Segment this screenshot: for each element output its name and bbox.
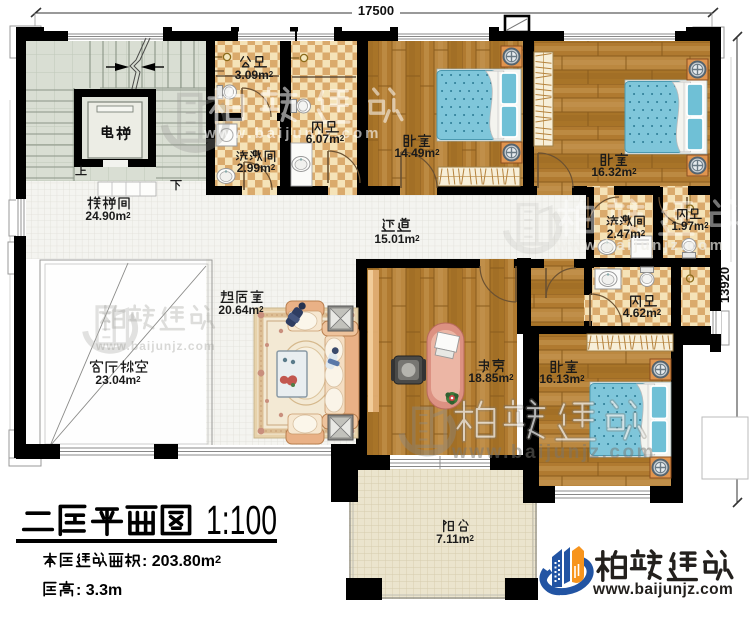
svg-text:17500: 17500 [358, 3, 394, 18]
svg-text:18.85m2: 18.85m2 [468, 371, 514, 385]
svg-text:www.baijunjz.com: www.baijunjz.com [592, 581, 733, 598]
svg-text:1:100: 1:100 [206, 497, 277, 543]
svg-text:4.62m2: 4.62m2 [623, 306, 662, 320]
svg-text:3.09m2: 3.09m2 [235, 68, 274, 82]
svg-text:www.baijunjz.com: www.baijunjz.com [203, 125, 381, 142]
svg-text:24.90m2: 24.90m2 [85, 209, 131, 223]
svg-text:16.13m2: 16.13m2 [539, 372, 585, 386]
svg-text:: 3.3m: : 3.3m [76, 582, 122, 599]
svg-text:www.baijunjz.com: www.baijunjz.com [95, 339, 216, 353]
svg-text:2.47m2: 2.47m2 [607, 227, 646, 241]
svg-text:20.64m2: 20.64m2 [218, 303, 264, 317]
svg-text:7.11m2: 7.11m2 [436, 532, 474, 546]
svg-text:14.49m2: 14.49m2 [394, 146, 440, 160]
svg-text:6.07m2: 6.07m2 [306, 132, 345, 146]
svg-text:1.97m2: 1.97m2 [671, 221, 709, 233]
svg-text:: 203.80m2: : 203.80m2 [142, 553, 221, 570]
svg-text:15.01m2: 15.01m2 [374, 232, 420, 246]
svg-text:16.32m2: 16.32m2 [591, 165, 637, 179]
svg-text:23.04m2: 23.04m2 [95, 373, 141, 387]
svg-text:www.baijunjz.com: www.baijunjz.com [451, 442, 656, 463]
svg-text:2.99m2: 2.99m2 [237, 161, 276, 175]
